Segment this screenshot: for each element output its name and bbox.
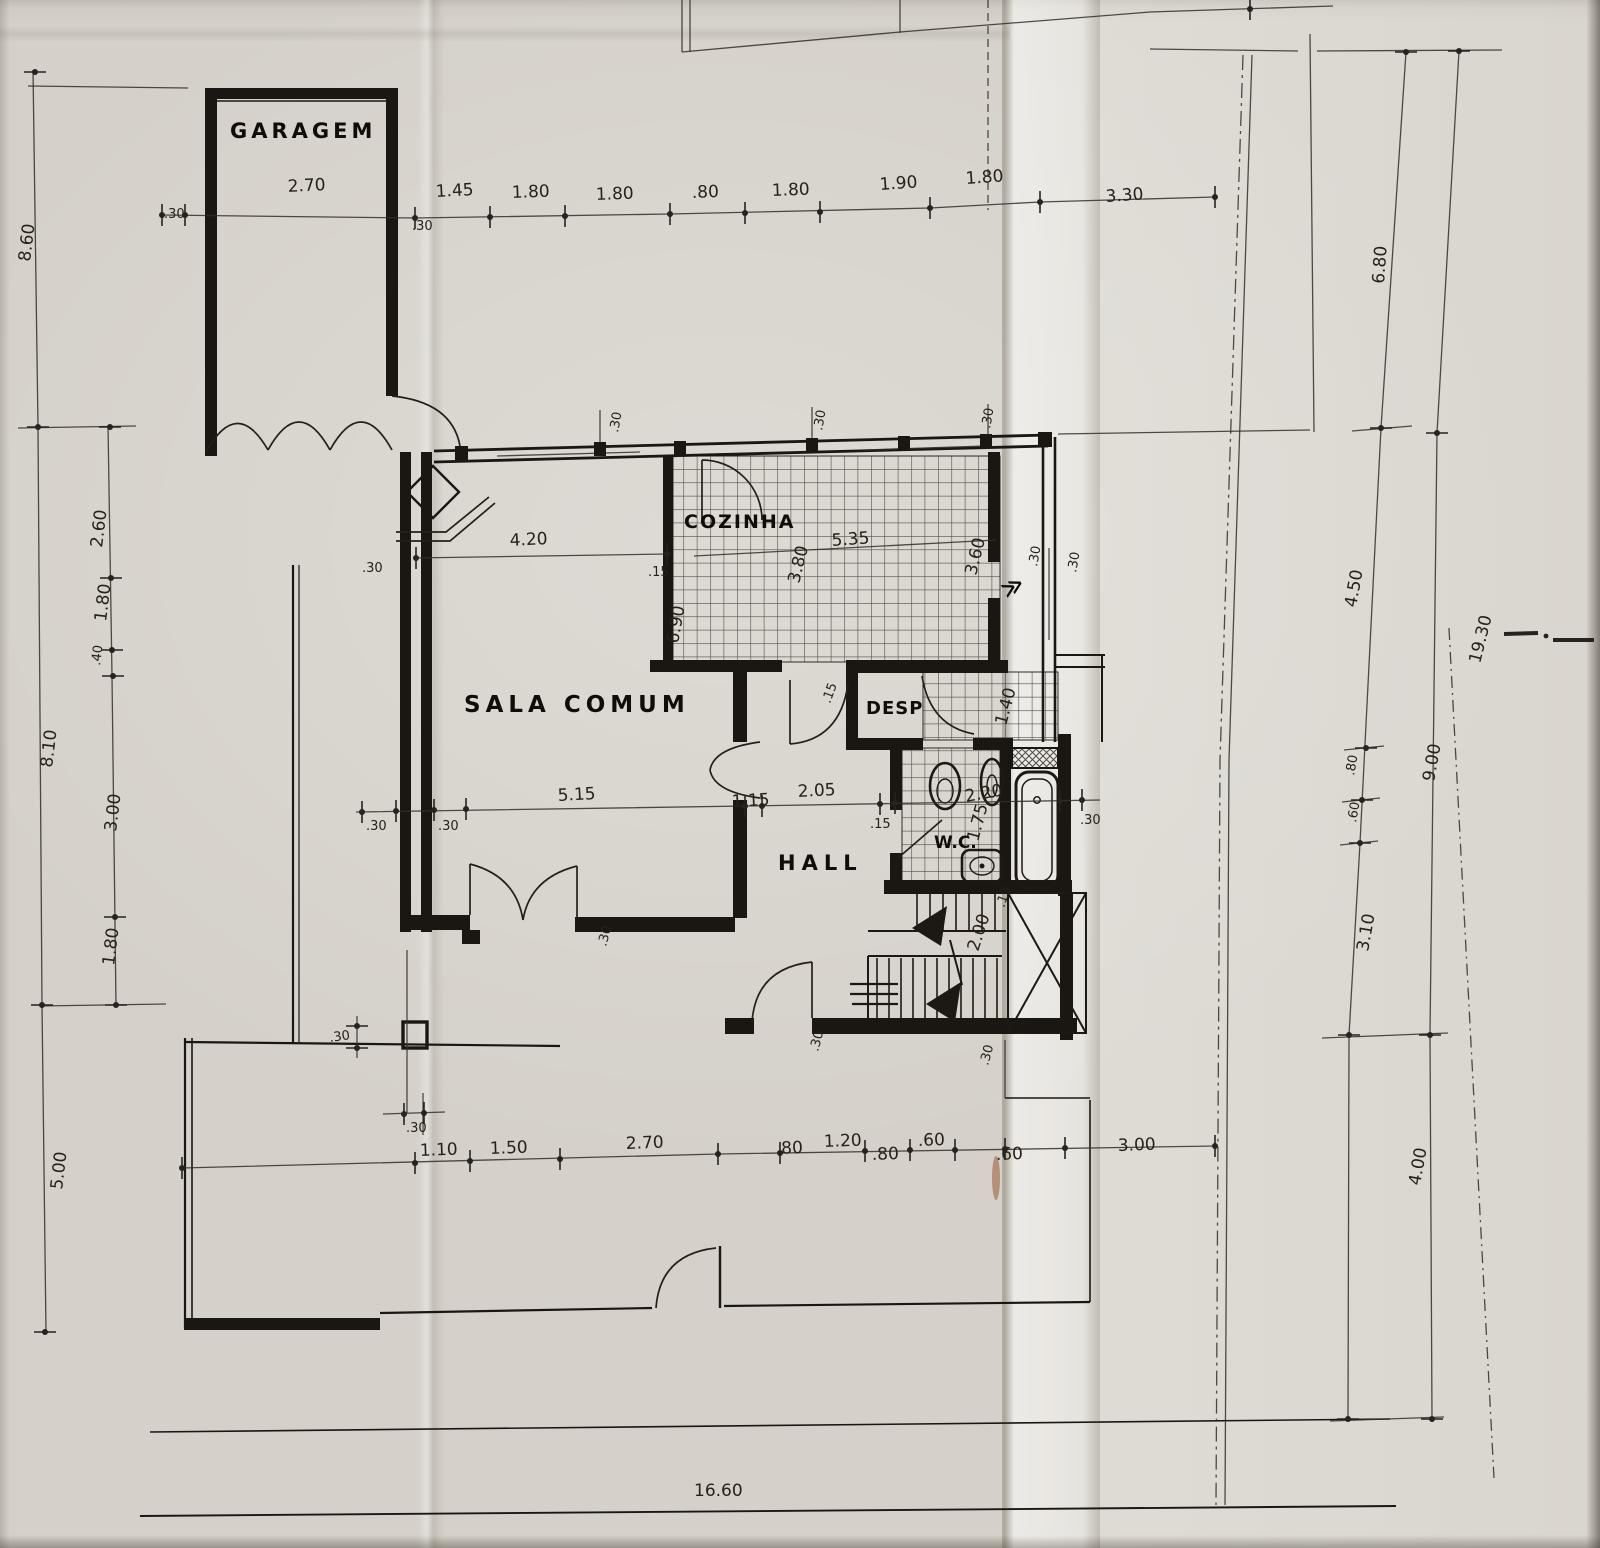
stair-void — [1008, 893, 1086, 1033]
dim-label: 8.10 — [37, 729, 61, 769]
dim-label: 4.50 — [1341, 568, 1367, 609]
dim-label: 1.80 — [91, 583, 115, 623]
dim-label: .80 — [691, 182, 719, 203]
dim-label: 1.45 — [435, 180, 474, 202]
dim-label: .30 — [406, 1121, 427, 1136]
dim-label: 2.70 — [625, 1133, 664, 1154]
dim-label: 1.10 — [419, 1140, 458, 1161]
dim-label: 1.90 — [879, 172, 918, 195]
dim-label: 2.70 — [287, 175, 326, 197]
dimension-labels: 2.70 .30 .30 1.45 1.80 1.80 .80 1.80 1.9… — [15, 166, 1497, 1501]
dim-label: .30 — [1065, 551, 1083, 574]
dim-label: .15 — [870, 817, 891, 832]
dim-label: 1.15 — [731, 790, 770, 812]
dim-label: 2.60 — [87, 509, 111, 549]
dim-label: .60 — [995, 1144, 1023, 1165]
room-label-sala-comum: SALA COMUM — [464, 692, 690, 718]
dim-label: 5.15 — [557, 784, 596, 806]
dim-label: .15 — [820, 681, 841, 706]
dim-label: .30 — [412, 219, 433, 234]
dim-label: .30 — [164, 207, 185, 222]
dim-label: .80 — [775, 1138, 803, 1159]
dim-label: 9.00 — [1419, 742, 1445, 783]
dim-label: 5.35 — [831, 528, 870, 551]
dim-label: 1.80 — [511, 182, 550, 203]
dim-label: 3.10 — [1353, 912, 1379, 953]
dim-label: .30 — [811, 409, 829, 432]
dim-label: 1.80 — [771, 180, 810, 201]
window-marker-icon: ≫ — [997, 571, 1028, 603]
floor-plan-drawing: GARAGEM SALA COMUM COZINHA DESP W.C. HAL… — [0, 0, 1600, 1548]
dim-label: .80 — [1343, 754, 1361, 777]
dim-label: .30 — [438, 819, 459, 834]
dim-label: 1.80 — [965, 166, 1004, 189]
dim-label: .30 — [362, 561, 383, 576]
dim-label: .30 — [607, 411, 625, 434]
dim-label: .30 — [328, 1028, 351, 1046]
staircase — [850, 893, 1086, 1033]
room-label-desp: DESP — [866, 698, 923, 719]
dim-label: 1.20 — [823, 1131, 862, 1152]
dim-label: .40 — [89, 644, 106, 666]
blueprint-photo: GARAGEM SALA COMUM COZINHA DESP W.C. HAL… — [0, 0, 1600, 1548]
dim-label: 3.30 — [1105, 184, 1144, 207]
dim-label: 6.80 — [1369, 245, 1392, 284]
dim-label: .30 — [977, 1043, 997, 1067]
dim-label: .30 — [807, 1029, 827, 1053]
dim-label: 3.00 — [101, 793, 125, 833]
dim-label-total: 16.60 — [694, 1481, 743, 1501]
dim-label: .30 — [1080, 813, 1101, 828]
dim-label: .80 — [871, 1144, 899, 1165]
radiator — [850, 984, 898, 1004]
dim-label: 1.80 — [99, 927, 123, 967]
dim-label: .60 — [917, 1130, 945, 1151]
dim-label: 1.50 — [489, 1138, 528, 1159]
dim-label: 2.05 — [797, 780, 836, 802]
dim-label: 4.00 — [1405, 1146, 1431, 1187]
dim-label: .15 — [648, 565, 669, 580]
dim-label: 19.30 — [1465, 613, 1496, 665]
dim-label: .30 — [979, 407, 997, 430]
room-label-garagem: GARAGEM — [230, 119, 376, 143]
room-label-cozinha: COZINHA — [684, 511, 795, 533]
dim-label: .30 — [366, 819, 387, 834]
dim-label: 1.80 — [595, 184, 634, 205]
dimension-lines — [18, 0, 1594, 1505]
dim-label: 5.00 — [47, 1151, 71, 1191]
dim-label: 3.00 — [1117, 1135, 1156, 1156]
room-label-hall: HALL — [778, 851, 863, 875]
dim-label: 4.20 — [509, 529, 548, 551]
